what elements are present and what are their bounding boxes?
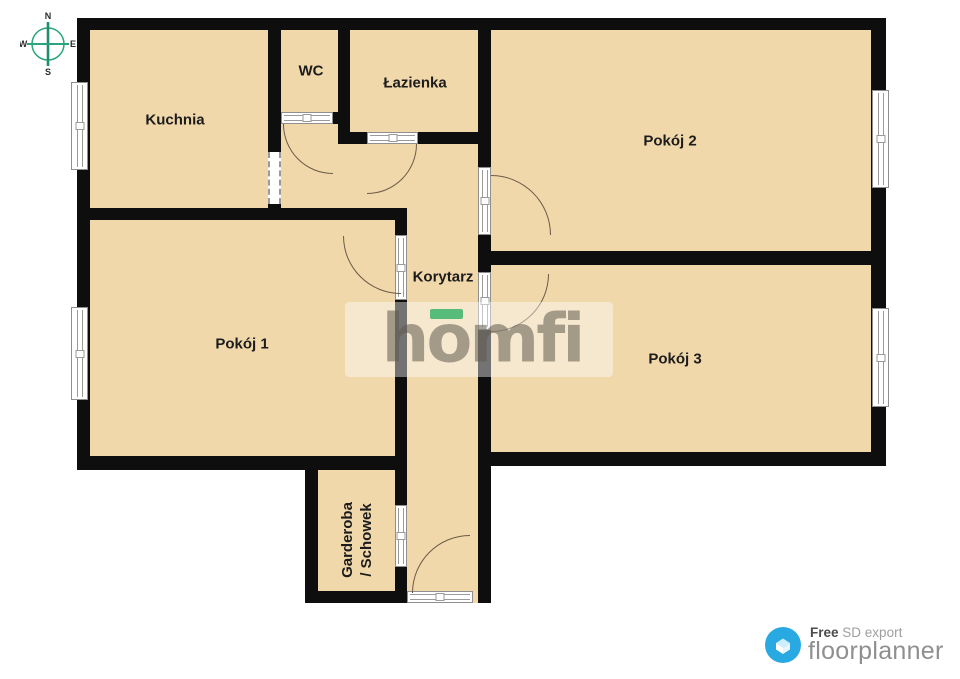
wall-corridor-right-b	[478, 235, 491, 272]
wall-wc-bottom-stub	[333, 112, 350, 124]
kuchnia-label: Kuchnia	[145, 112, 204, 129]
pokoj3-label: Pokój 3	[648, 351, 701, 368]
wc-label: WC	[299, 63, 324, 80]
wall-corridor-right-a	[478, 30, 491, 167]
door-pokoj2	[478, 167, 491, 235]
floor-plan: Kuchnia WC Łazienka Pokój 2 Korytarz Pok…	[0, 0, 960, 679]
window-pokoj1	[71, 307, 88, 400]
wall-bottom-right	[478, 452, 886, 466]
homfi-logo-text: homfi	[382, 306, 583, 373]
floorplanner-logo	[765, 627, 801, 663]
kitchen-opening	[268, 152, 281, 204]
svg-text:N: N	[45, 11, 52, 21]
pokoj2-label: Pokój 2	[643, 133, 696, 150]
homfi-logo-accent-bar	[430, 309, 463, 319]
wall-pokoj1-top	[77, 208, 407, 220]
garderoba-label-line2: / Schowek	[358, 503, 375, 576]
compass-icon: N E S W	[20, 10, 76, 76]
svg-text:W: W	[20, 39, 28, 49]
lazienka-label: Łazienka	[383, 75, 446, 92]
floorplanner-house-icon	[771, 633, 795, 657]
door-wc	[281, 112, 333, 124]
wall-outer-top	[77, 18, 884, 30]
wall-garderoba-bottom	[305, 591, 407, 603]
door-garderoba	[395, 505, 407, 567]
pokoj1-label: Pokój 1	[215, 336, 268, 353]
wall-lazienka-bottom-right	[418, 132, 478, 144]
wall-pokoj2-pokoj3-divider	[491, 251, 884, 265]
window-pokoj3	[872, 308, 889, 407]
garderoba-label-line1: Garderoba	[339, 502, 356, 578]
floorplanner-wordmark: floorplanner	[808, 637, 944, 666]
wall-lazienka-bottom-left	[350, 132, 367, 144]
garderoba-label: Garderoba / Schowek	[338, 502, 376, 578]
svg-text:E: E	[70, 39, 76, 49]
wall-bottom-left	[77, 456, 407, 470]
wall-garderoba-left	[305, 470, 318, 603]
door-lazienka	[367, 132, 418, 144]
svg-text:S: S	[45, 67, 51, 76]
korytarz-label: Korytarz	[413, 269, 474, 286]
window-kuchnia	[71, 82, 88, 170]
wall-wc-lazienka-divider	[338, 30, 350, 144]
wall-kitchen-right-upper	[268, 30, 281, 152]
wall-corridor-left-a	[395, 220, 407, 235]
window-pokoj2	[872, 90, 889, 188]
